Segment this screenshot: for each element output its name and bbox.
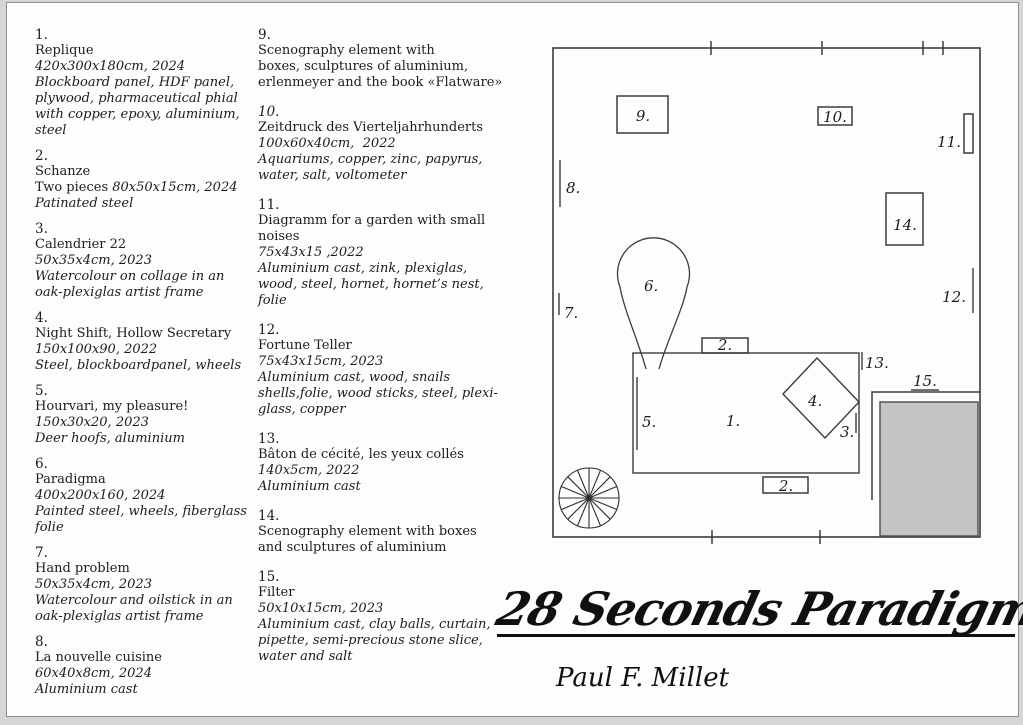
spiral-staircase-icon <box>559 468 619 528</box>
plan-label-7: 7. <box>564 304 578 322</box>
plan-label-5: 5. <box>642 413 656 431</box>
plan-label-2-top: 2. <box>717 336 732 354</box>
exhibition-title-script: 28 Seconds Paradigma <box>491 582 1021 636</box>
artist-name: Paul F. Millet <box>556 663 729 693</box>
artwork-11-box <box>964 114 973 153</box>
plan-label-6: 6. <box>644 277 658 295</box>
plan-label-13: 13. <box>865 354 889 372</box>
title-strikethrough-line <box>497 634 1015 637</box>
plan-label-8: 8. <box>566 179 580 197</box>
plan-label-14: 14. <box>893 216 917 234</box>
artwork-1-platform <box>633 353 859 473</box>
plan-label-1: 1. <box>726 412 740 430</box>
plan-label-3: 3. <box>840 423 854 441</box>
artwork-15-gray-area <box>880 402 978 536</box>
plan-label-9: 9. <box>636 107 650 125</box>
plan-label-11: 11. <box>937 133 961 151</box>
exhibition-plan-sheet: 1.Replique420x300x180cm, 2024Blockboard … <box>0 0 1023 725</box>
plan-label-15: 15. <box>913 372 937 390</box>
artwork-6-balloon-shape <box>618 238 690 369</box>
plan-label-2-bottom: 2. <box>778 477 793 495</box>
plan-label-12: 12. <box>942 288 966 306</box>
plan-label-10: 10. <box>823 108 847 126</box>
plan-label-4: 4. <box>807 392 822 410</box>
